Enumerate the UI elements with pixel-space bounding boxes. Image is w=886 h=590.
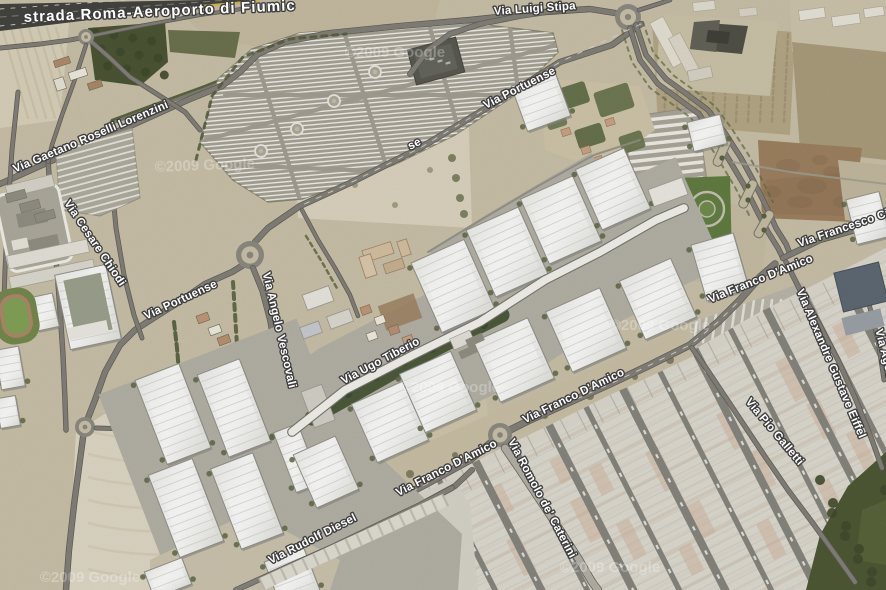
svg-text:©2009 Google: ©2009 Google — [400, 379, 500, 396]
svg-text:©2009 Google: ©2009 Google — [560, 559, 660, 576]
svg-text:©2009 Google: ©2009 Google — [345, 44, 445, 61]
svg-text:©2009 Google: ©2009 Google — [154, 155, 255, 175]
svg-text:©2009 Google: ©2009 Google — [40, 569, 140, 586]
svg-text:©2009 Google: ©2009 Google — [610, 317, 710, 334]
